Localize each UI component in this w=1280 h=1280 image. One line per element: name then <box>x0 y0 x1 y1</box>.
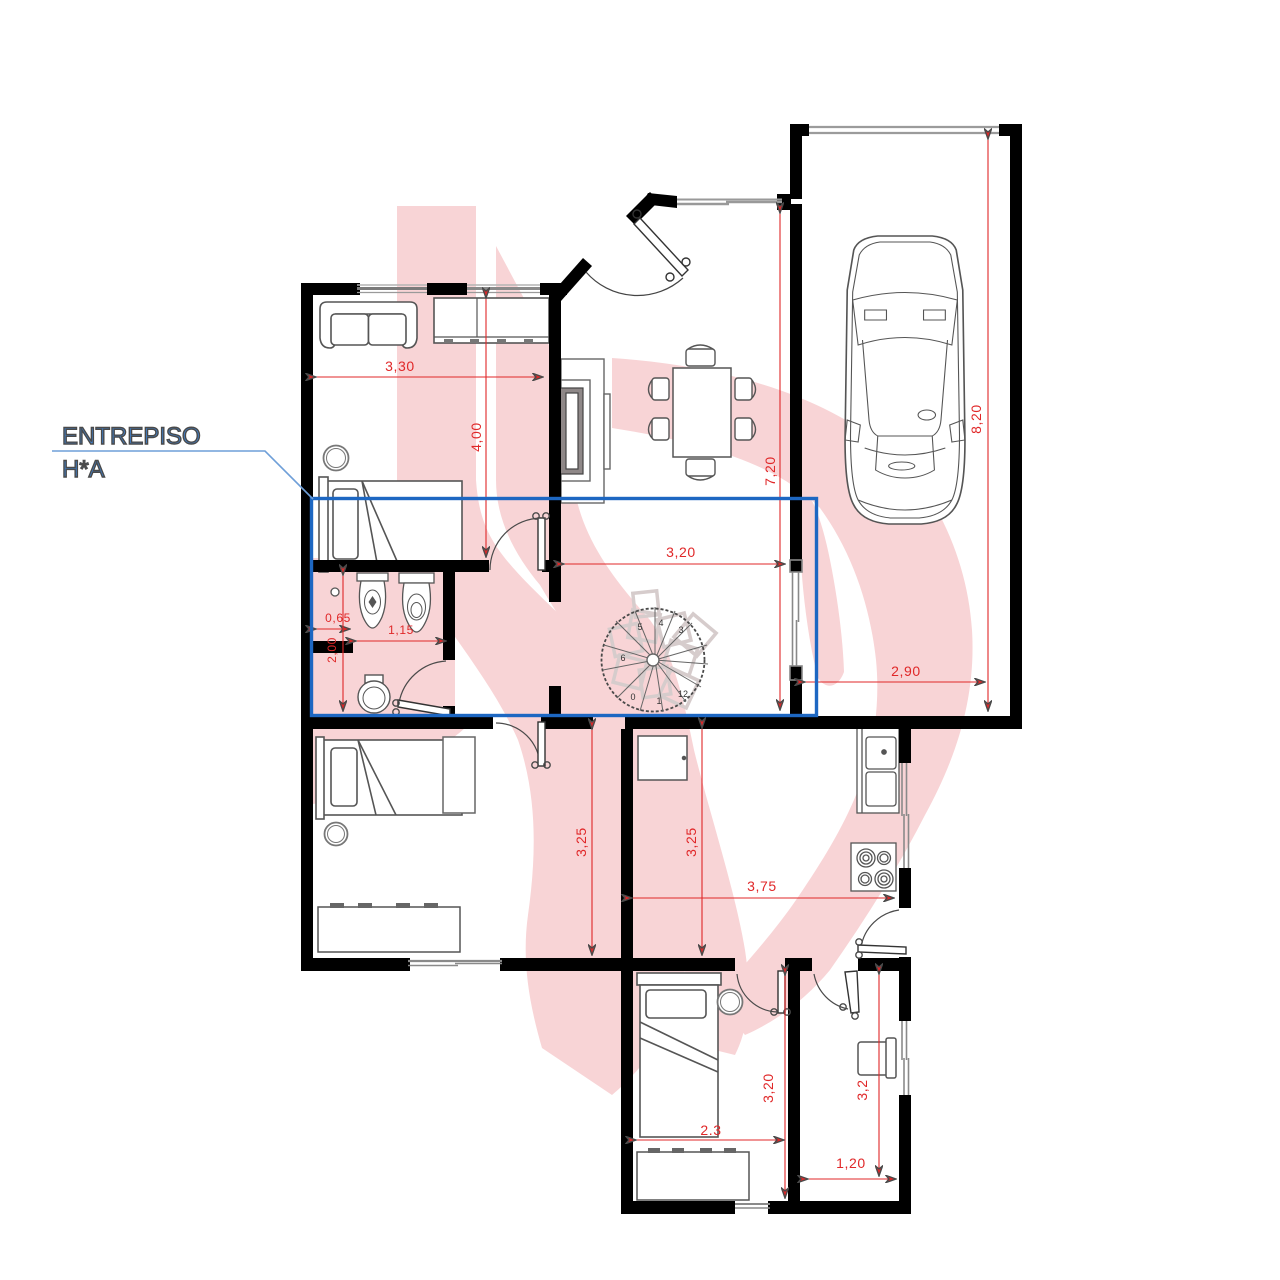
svg-text:3,20: 3,20 <box>666 544 696 560</box>
svg-text:3,25: 3,25 <box>573 827 589 857</box>
svg-text:ENTREPISO: ENTREPISO <box>62 423 201 450</box>
svg-text:8,20: 8,20 <box>968 404 984 434</box>
svg-text:3: 3 <box>678 625 683 635</box>
svg-text:2,00: 2,00 <box>325 637 339 663</box>
svg-text:6: 6 <box>620 653 625 663</box>
svg-text:3,20: 3,20 <box>760 1073 776 1103</box>
svg-text:12: 12 <box>678 689 688 699</box>
svg-text:0,65: 0,65 <box>325 611 351 625</box>
svg-text:1: 1 <box>656 696 661 706</box>
svg-text:4,00: 4,00 <box>468 422 484 452</box>
svg-text:7,20: 7,20 <box>762 456 778 486</box>
svg-text:1,15: 1,15 <box>388 623 414 637</box>
svg-text:3,75: 3,75 <box>747 878 777 894</box>
svg-text:3,25: 3,25 <box>683 827 699 857</box>
svg-text:0: 0 <box>630 692 635 702</box>
svg-text:3,2: 3,2 <box>854 1079 870 1100</box>
svg-text:1,20: 1,20 <box>836 1155 866 1171</box>
svg-text:2,90: 2,90 <box>891 663 921 679</box>
svg-text:H*A: H*A <box>62 456 105 483</box>
svg-text:5: 5 <box>637 622 642 632</box>
svg-text:3,30: 3,30 <box>385 358 415 374</box>
svg-text:4: 4 <box>658 618 663 628</box>
svg-text:2.3: 2.3 <box>700 1122 721 1138</box>
